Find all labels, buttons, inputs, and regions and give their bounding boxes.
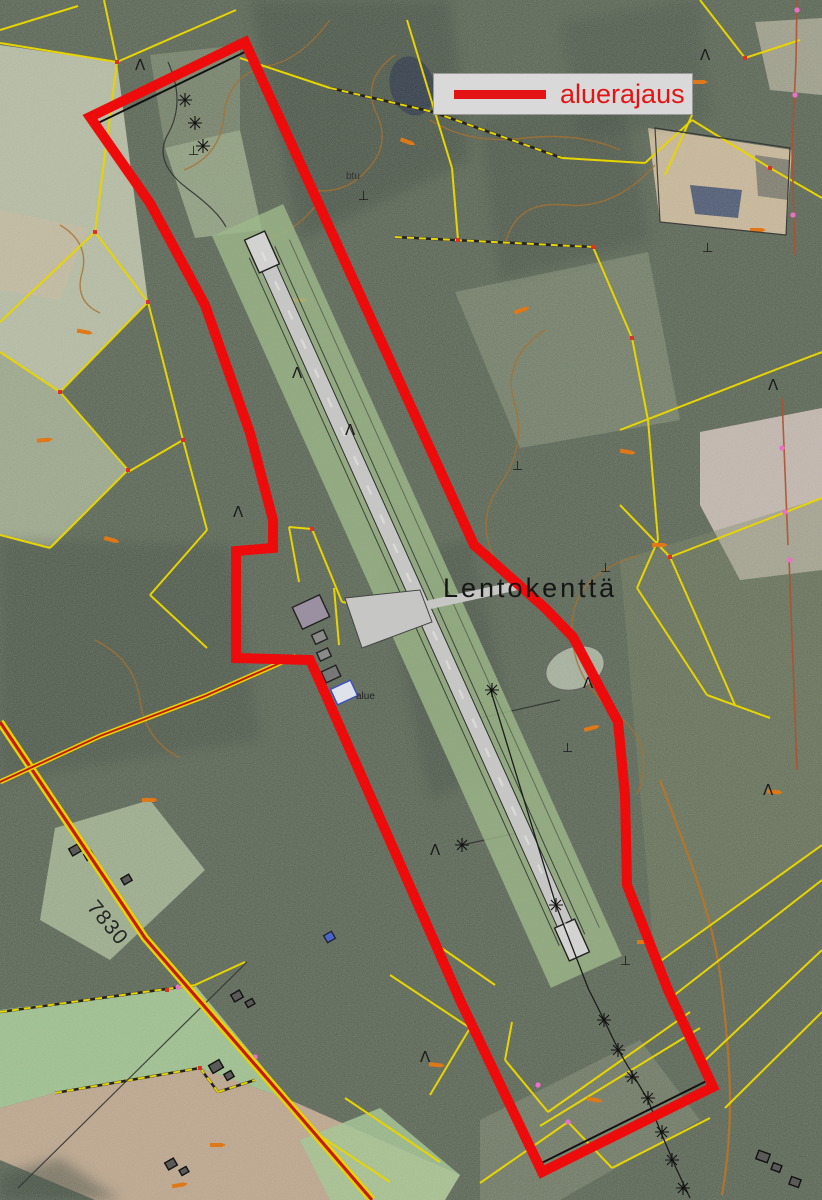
label-building-area: alue	[356, 691, 375, 702]
svg-text:Λ: Λ	[345, 421, 356, 439]
legend: aluerajaus	[433, 73, 693, 115]
svg-text:⊥: ⊥	[358, 189, 369, 204]
legend-line-swatch	[454, 90, 546, 99]
map-viewport: ΛΛΛΛΛΛΛΛΛΛ⊥⊥⊥⊥⊥⊥⊥ aluerajaus Lentokenttä…	[0, 0, 822, 1200]
svg-text:⊥: ⊥	[562, 741, 573, 756]
svg-text:⊥: ⊥	[188, 144, 199, 159]
label-small-top: btu	[346, 171, 360, 182]
svg-text:Λ: Λ	[135, 56, 146, 74]
aerial-map-canvas: ΛΛΛΛΛΛΛΛΛΛ⊥⊥⊥⊥⊥⊥⊥	[0, 0, 822, 1200]
legend-label: aluerajaus	[560, 81, 685, 108]
svg-text:Λ: Λ	[763, 781, 774, 799]
svg-text:⊥: ⊥	[512, 459, 523, 474]
svg-text:Λ: Λ	[292, 364, 303, 382]
svg-text:⊥: ⊥	[620, 954, 631, 969]
svg-text:Λ: Λ	[700, 46, 711, 64]
svg-text:Λ: Λ	[233, 503, 244, 521]
svg-text:Λ: Λ	[768, 376, 779, 394]
label-airfield: Lentokenttä	[443, 573, 617, 604]
svg-text:⊥: ⊥	[702, 241, 713, 256]
svg-text:Λ: Λ	[420, 1048, 431, 1066]
svg-text:Λ: Λ	[430, 841, 441, 859]
